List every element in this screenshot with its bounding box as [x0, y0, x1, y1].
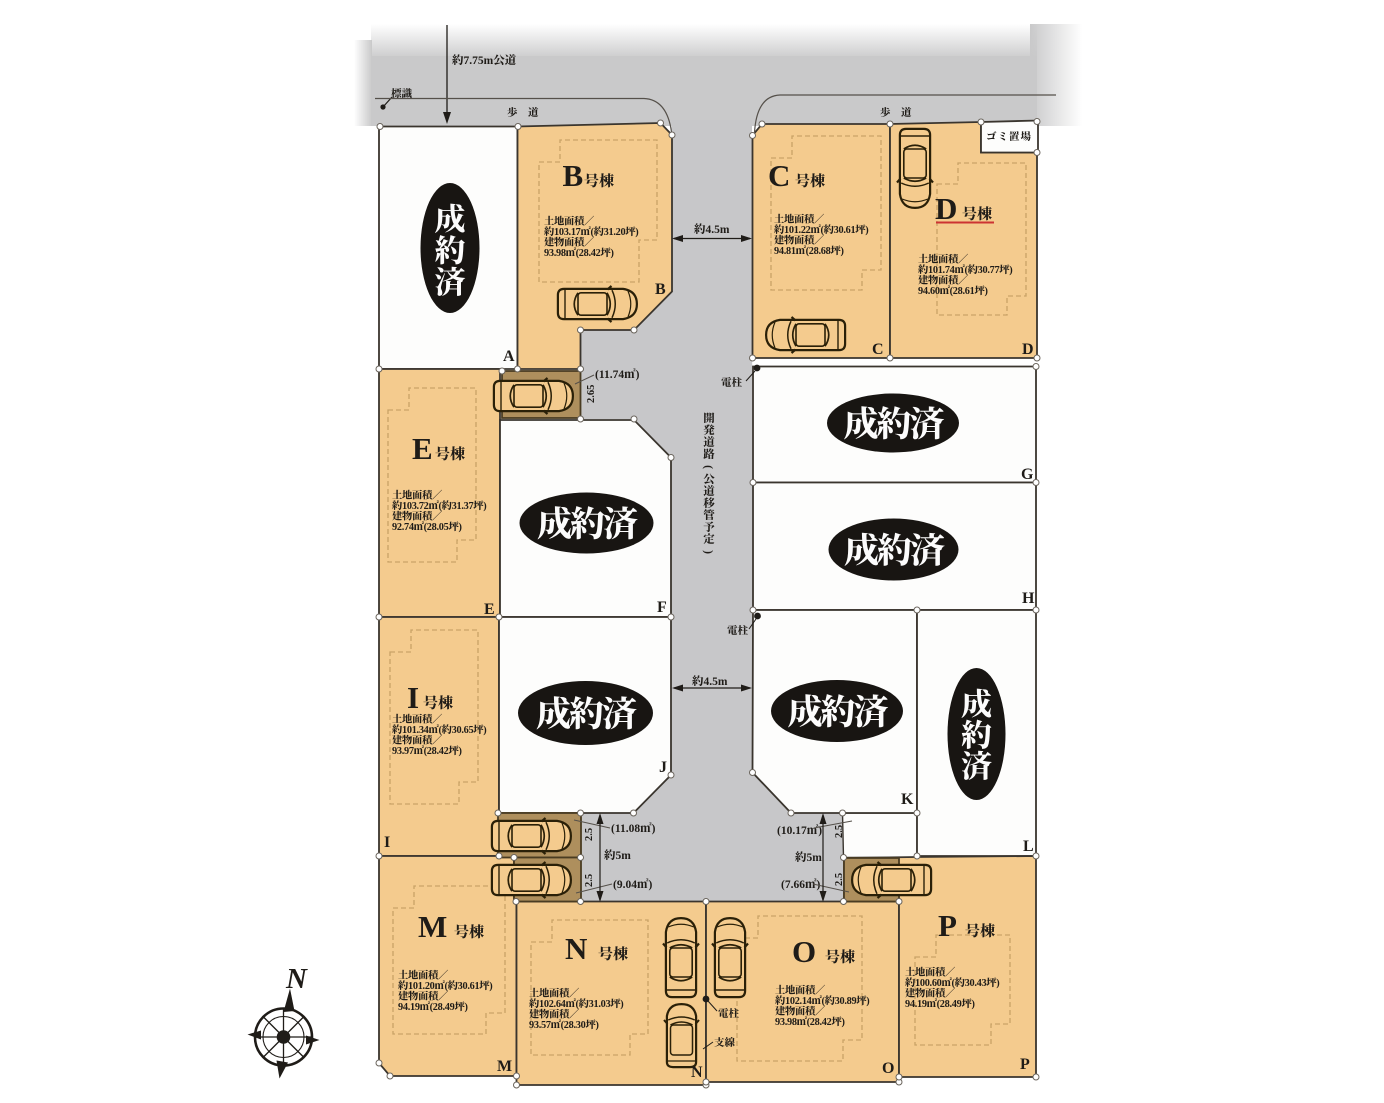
svg-text:約5m: 約5m — [604, 847, 631, 863]
svg-text:G: G — [1021, 461, 1034, 484]
svg-text:H: H — [1022, 585, 1035, 608]
svg-text:済: 済 — [435, 257, 466, 302]
svg-text:E: E — [412, 423, 433, 468]
svg-text:M: M — [497, 1053, 512, 1076]
svg-text:(9.04㎡): (9.04㎡) — [613, 876, 652, 892]
svg-text:94.19㎡(28.49坪): 94.19㎡(28.49坪) — [905, 995, 975, 1010]
svg-text:2.65: 2.65 — [583, 385, 598, 403]
svg-text:C: C — [872, 336, 884, 359]
svg-text:A: A — [503, 343, 515, 366]
svg-text:2.5: 2.5 — [581, 828, 596, 841]
svg-text:号棟: 号棟 — [454, 921, 484, 942]
svg-text:成約済: 成約済 — [537, 497, 638, 547]
svg-text:2.5: 2.5 — [831, 873, 846, 886]
svg-text:約7.75m公道: 約7.75m公道 — [452, 52, 517, 68]
svg-text:N: N — [285, 956, 308, 997]
svg-text:D: D — [935, 183, 957, 228]
svg-text:定: 定 — [703, 531, 715, 547]
svg-text:成約済: 成約済 — [843, 397, 944, 447]
svg-text:号棟: 号棟 — [584, 170, 614, 191]
svg-text:L: L — [1023, 833, 1034, 856]
svg-text:O: O — [882, 1055, 894, 1078]
svg-text:D: D — [1022, 336, 1034, 359]
svg-text:93.97㎡(28.42坪): 93.97㎡(28.42坪) — [392, 742, 462, 757]
svg-text:B: B — [655, 276, 666, 299]
svg-text:C: C — [768, 150, 790, 195]
svg-text:(10.17㎡): (10.17㎡) — [777, 822, 822, 838]
svg-text:N: N — [691, 1059, 703, 1082]
svg-text:約4.5m: 約4.5m — [694, 221, 730, 237]
svg-text:(: ( — [701, 465, 717, 469]
svg-text:号棟: 号棟 — [435, 443, 465, 464]
svg-text:I: I — [384, 829, 390, 852]
svg-text:号棟: 号棟 — [962, 203, 992, 224]
svg-text:成約済: 成約済 — [787, 685, 888, 735]
svg-text:93.57㎡(28.30坪): 93.57㎡(28.30坪) — [529, 1016, 599, 1031]
svg-text:支線: 支線 — [714, 1035, 735, 1050]
svg-text:ゴミ置場: ゴミ置場 — [986, 129, 1032, 144]
svg-text:E: E — [484, 596, 495, 619]
svg-text:2.5: 2.5 — [581, 874, 596, 887]
svg-text:P: P — [938, 900, 957, 945]
svg-text:): ) — [701, 550, 717, 554]
svg-text:(11.74㎡): (11.74㎡) — [595, 366, 640, 382]
svg-text:M: M — [418, 901, 447, 946]
svg-text:94.60㎡(28.61坪): 94.60㎡(28.61坪) — [918, 282, 988, 297]
svg-text:P: P — [1020, 1051, 1030, 1074]
svg-text:電柱: 電柱 — [727, 623, 748, 638]
svg-text:F: F — [657, 594, 667, 617]
svg-text:路: 路 — [703, 446, 715, 462]
svg-text:号棟: 号棟 — [965, 920, 995, 941]
svg-text:歩 道: 歩 道 — [880, 105, 912, 120]
svg-text:号棟: 号棟 — [795, 170, 825, 191]
svg-text:成約済: 成約済 — [844, 524, 945, 574]
svg-text:93.98㎡(28.42坪): 93.98㎡(28.42坪) — [544, 244, 614, 259]
svg-text:約4.5m: 約4.5m — [692, 673, 728, 689]
svg-text:J: J — [659, 754, 667, 777]
svg-text:2.5: 2.5 — [831, 825, 846, 838]
svg-text:N: N — [565, 923, 587, 968]
svg-text:94.81㎡(28.68坪): 94.81㎡(28.68坪) — [774, 242, 844, 257]
svg-text:電柱: 電柱 — [718, 1006, 739, 1021]
svg-text:O: O — [792, 926, 816, 971]
svg-text:歩 道: 歩 道 — [507, 105, 539, 120]
svg-text:成約済: 成約済 — [536, 687, 637, 737]
svg-text:済: 済 — [961, 741, 992, 786]
svg-text:号棟: 号棟 — [825, 946, 855, 967]
svg-text:92.74㎡(28.05坪): 92.74㎡(28.05坪) — [392, 518, 462, 533]
svg-text:94.19㎡(28.49坪): 94.19㎡(28.49坪) — [398, 998, 468, 1013]
svg-text:B: B — [563, 150, 584, 195]
svg-text:約5m: 約5m — [795, 849, 822, 865]
svg-text:電柱: 電柱 — [721, 375, 742, 390]
svg-text:K: K — [901, 786, 914, 809]
svg-text:93.98㎡(28.42坪): 93.98㎡(28.42坪) — [775, 1013, 845, 1028]
svg-text:(11.08㎡): (11.08㎡) — [611, 820, 656, 836]
svg-text:号棟: 号棟 — [598, 943, 628, 964]
